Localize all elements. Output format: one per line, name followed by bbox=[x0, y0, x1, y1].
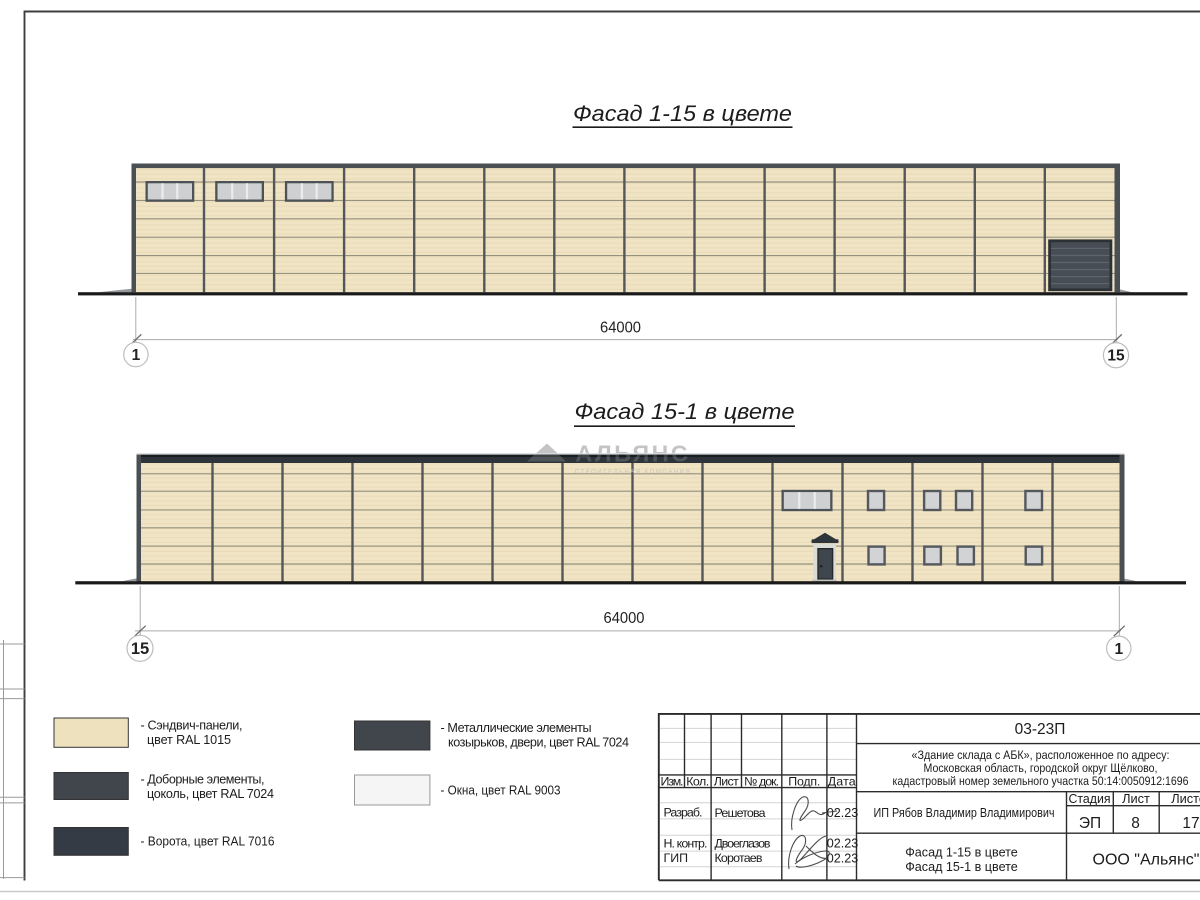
svg-text:- Ворота, цвет RAL 7016: - Ворота, цвет RAL 7016 bbox=[141, 835, 275, 849]
svg-text:Н. контр.: Н. контр. bbox=[664, 837, 708, 851]
svg-text:- Доборные элементы,: - Доборные элементы, bbox=[141, 773, 265, 787]
svg-text:02.23: 02.23 bbox=[827, 852, 859, 866]
svg-text:Стадия: Стадия bbox=[1069, 791, 1111, 806]
svg-text:кадастровый номер земельного у: кадастровый номер земельного участка 50:… bbox=[893, 774, 1189, 788]
svg-text:Кол.: Кол. bbox=[686, 774, 709, 788]
svg-text:03-23П: 03-23П bbox=[1015, 721, 1066, 738]
svg-text:- Сэндвич-панели,: - Сэндвич-панели, bbox=[141, 719, 243, 733]
svg-text:64000: 64000 bbox=[604, 610, 645, 627]
svg-text:ИП Рябов Владимир Владимирович: ИП Рябов Владимир Владимирович bbox=[874, 806, 1055, 820]
svg-text:Коротаев: Коротаев bbox=[715, 851, 763, 865]
svg-text:«Здание склада с АБК», располо: «Здание склада с АБК», расположенное по … bbox=[912, 748, 1170, 762]
svg-text:№ док.: № док. bbox=[744, 774, 779, 788]
svg-text:цвет RAL 1015: цвет RAL 1015 bbox=[147, 733, 231, 747]
svg-text:64000: 64000 bbox=[600, 319, 641, 336]
svg-text:ООО "Альянс": ООО "Альянс" bbox=[1093, 852, 1200, 869]
svg-text:Двоеглазов: Двоеглазов bbox=[715, 837, 771, 851]
svg-text:Лист: Лист bbox=[714, 774, 739, 788]
svg-text:1: 1 bbox=[132, 347, 141, 364]
svg-text:цоколь, цвет RAL 7024: цоколь, цвет RAL 7024 bbox=[147, 787, 274, 801]
svg-text:СТРОИТЕЛЬНАЯ КОМПАНИЯ: СТРОИТЕЛЬНАЯ КОМПАНИЯ bbox=[575, 470, 691, 476]
svg-text:Изм.: Изм. bbox=[661, 774, 684, 788]
svg-text:15: 15 bbox=[131, 640, 149, 658]
svg-text:- Металлические элементы: - Металлические элементы bbox=[441, 721, 592, 735]
svg-text:15: 15 bbox=[1107, 348, 1125, 365]
svg-text:Фасад 1-15 в цвете: Фасад 1-15 в цвете bbox=[905, 846, 1018, 860]
svg-text:Фасад 1-15 в цвете: Фасад 1-15 в цвете bbox=[573, 101, 792, 126]
svg-text:1: 1 bbox=[1114, 641, 1123, 658]
svg-text:8: 8 bbox=[1131, 815, 1140, 832]
svg-text:Московская область, городской: Московская область, городской округ Щёлк… bbox=[924, 761, 1158, 775]
svg-text:Листов: Листов bbox=[1171, 791, 1200, 806]
svg-text:Разраб.: Разраб. bbox=[664, 806, 703, 820]
svg-text:Подп.: Подп. bbox=[788, 774, 820, 788]
svg-text:Дата: Дата bbox=[828, 774, 856, 788]
svg-text:Лист: Лист bbox=[1122, 791, 1150, 806]
svg-text:ГИП: ГИП bbox=[664, 851, 689, 865]
svg-text:02.23: 02.23 bbox=[827, 837, 859, 851]
svg-text:02.23: 02.23 bbox=[827, 806, 859, 820]
svg-text:17: 17 bbox=[1182, 815, 1199, 832]
svg-text:Решетова: Решетова bbox=[715, 806, 766, 820]
svg-text:- Окна, цвет RAL 9003: - Окна, цвет RAL 9003 bbox=[441, 784, 561, 798]
svg-text:Фасад 15-1 в цвете: Фасад 15-1 в цвете bbox=[575, 399, 795, 424]
svg-text:козырьков, двери, цвет RAL 702: козырьков, двери, цвет RAL 7024 bbox=[448, 736, 629, 750]
svg-text:Фасад 15-1 в цвете: Фасад 15-1 в цвете bbox=[905, 860, 1018, 874]
svg-text:ЭП: ЭП bbox=[1079, 815, 1101, 832]
